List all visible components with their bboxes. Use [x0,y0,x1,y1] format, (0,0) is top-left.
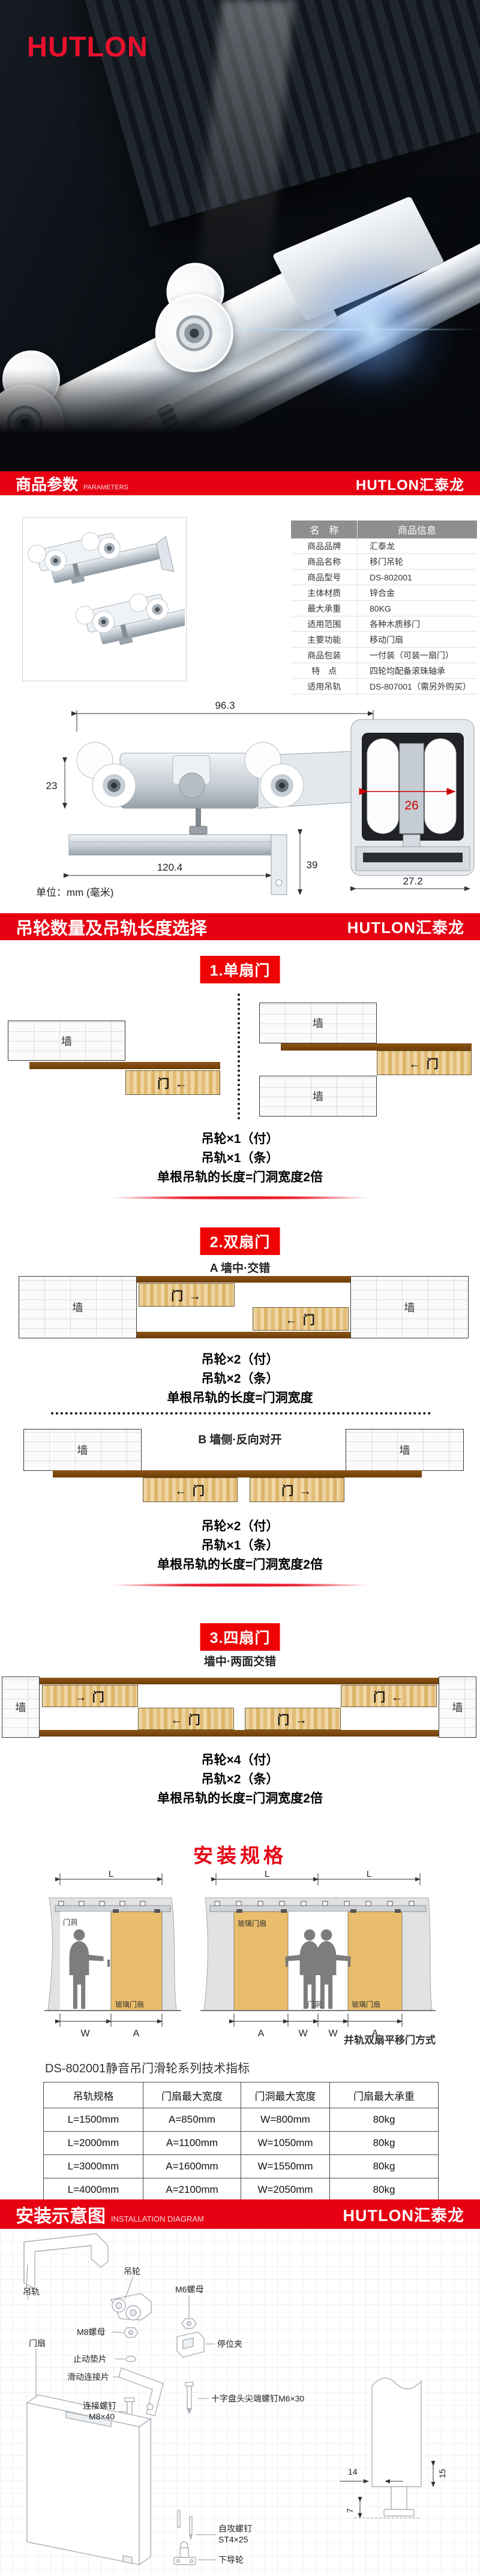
door-panel-callout: 门扇 [29,2339,46,2348]
dimension-drawing: 96.3 23 17.8 120.4 39 单位：mm (毫米) 26 27.2 [0,696,480,899]
table-row: 最大承重80KG [292,601,477,616]
dim-bracket-label: 39 [307,859,318,871]
slide-plate-callout: 滑动连接片 [67,2372,109,2382]
tech-table-title: DS-802001静音吊门滑轮系列技术指标 [45,2059,250,2076]
table-row: 商品包装一付装（可装一扇门） [292,648,477,663]
cell: L=2000mm [44,2132,143,2155]
cell: W=2050mm [241,2178,330,2202]
door-panel: ← 门 [143,1477,238,1502]
roller-callout: 吊轮 [124,2267,140,2276]
dim-inner-label: 26 [404,799,418,812]
install-figure-double: L L 玻璃门扇 门洞 玻璃门扇 A W W A [198,1871,438,2045]
badge-quad-door: 3.四扇门 [200,1623,280,1651]
spec-line: 单根吊轨的长度=门洞宽度2倍 [0,1168,480,1187]
product-photo [22,517,187,681]
table-row: 适用吊轨DS-807001（需另外购买） [292,679,477,694]
spec-label: 主要功能 [292,632,358,648]
product-detail-page: HUTLON 商品参数 PARAMETERS HUTLON汇泰龙 [0,0,480,2576]
spec-lines-double-a: 吊轮×2（付） 吊轨×2（条） 单根吊轨的长度=门洞宽度 [0,1350,480,1408]
cell: A=1600mm [143,2155,241,2178]
table-row: 特 点四轮均配备滚珠轴承 [292,663,477,679]
label-quad-config: 墙中·两面交错 [0,1653,480,1669]
table-row: 商品品牌汇泰龙 [292,538,477,554]
banner-subtitle: INSTALLATION DIAGRAM [111,2214,204,2223]
wall-label: 墙 [61,1033,72,1049]
spec-header-info: 商品信息 [358,521,477,538]
banner-brand: HUTLON汇泰龙 [356,473,464,494]
door-panel: 门 ← [125,1070,220,1095]
self-screw-callout: 自攻螺钉 [218,2524,252,2533]
spec-line: 吊轮×4（付） [0,1751,480,1770]
spec-label: 最大承重 [292,601,358,616]
cell: A=1100mm [143,2132,241,2155]
spec-line: 吊轮×2（付） [0,1350,480,1370]
spec-line: 吊轨×2（条） [0,1770,480,1789]
cell: A=850mm [143,2108,241,2132]
tech-indicator-table: 吊轨规格 门扇最大宽度 门洞最大宽度 门扇最大承重 L=1500mmA=850m… [43,2082,439,2202]
spec-value: 移动门扇 [358,632,477,648]
opening-label: 门洞 [307,2000,322,2009]
figure-caption: 并轨双扇平移门方式 [240,2032,436,2047]
glass-door-label: 玻璃门扇 [238,1919,266,1928]
m6-screw-callout: 十字盘头尖端螺钉M6×30 [211,2394,304,2403]
col-header: 门扇最大宽度 [143,2083,241,2108]
install-spec-title: 安装规格 [0,1840,480,1868]
door-panel: 门 → [245,1708,341,1730]
product-spec-table: 名 称 商品信息 商品品牌汇泰龙 商品名称移门吊轮 商品型号DS-802001 … [291,520,477,694]
dim-l-label: L [109,1871,113,1879]
washer-callout: 止动垫片 [73,2354,107,2364]
spec-value: 四轮均配备滚珠轴承 [358,663,477,679]
dotted-divider-horizontal [51,1412,431,1415]
spec-lines-single: 吊轮×1（付） 吊轨×1（条） 单根吊轨的长度=门洞宽度2倍 [0,1130,480,1187]
m8-screw-callout: 连接螺钉 [83,2401,116,2411]
wall-label: 墙 [77,1442,88,1458]
table-header-row: 吊轨规格 门扇最大宽度 门洞最大宽度 门扇最大承重 [44,2083,439,2108]
wall-block: 墙 [439,1677,476,1738]
spec-value: 80KG [358,601,477,616]
dim-l-label: L [367,1871,371,1879]
exploded-diagram-area: 吊轨 吊轮 M6螺母 M8螺母 止动垫片 滑动连接片 停位夹 十字盘头尖端螺钉M… [0,2229,480,2576]
spec-line: 单根吊轨的长度=门洞宽度2倍 [0,1555,480,1575]
door-panel: ← 门 [377,1051,472,1075]
col-header: 吊轨规格 [44,2083,143,2108]
wall-block: 墙 [259,1076,377,1117]
m8-screw-size: M8×40 [89,2412,115,2421]
cell: 80kg [330,2108,439,2132]
rail-bar [40,1730,439,1737]
dim-14-label: 14 [348,2467,358,2476]
self-screw-size: ST4×25 [218,2535,248,2544]
rail-bar [137,1276,350,1283]
table-row: L=1500mmA=850mmW=800mm80kg [44,2108,439,2132]
wall-label: 墙 [313,1088,323,1104]
dim-profile-label: 27.2 [403,875,422,887]
spec-line: 单根吊轨的长度=门洞宽度 [0,1389,480,1408]
dim-w-label: W [80,2029,90,2039]
spec-value: 汇泰龙 [358,538,477,554]
hero-light-streak [198,329,480,330]
rail-bar [137,1332,350,1338]
dim-rail-label: 120.4 [157,862,183,873]
banner-brand: HUTLON汇泰龙 [343,2202,464,2226]
table-row: 商品名称移门吊轮 [292,554,477,570]
unit-note: 单位：mm (毫米) [36,887,113,898]
rail-bar [29,1062,220,1069]
spec-value: DS-802001 [358,570,477,585]
col-header: 门洞最大宽度 [241,2083,330,2108]
table-header-row: 名 称 商品信息 [292,521,477,538]
hero-floor-shadow [0,369,480,471]
cell: 80kg [330,2132,439,2155]
spec-line: 吊轨×2（条） [0,1370,480,1389]
wall-block: 墙 [23,1429,142,1471]
table-row: 适用范围各种木质移门 [292,616,477,632]
cell: 80kg [330,2178,439,2202]
wall-block: 墙 [350,1276,469,1338]
spec-line: 吊轨×1（条） [0,1149,480,1168]
banner-title: 商品参数 [16,473,78,495]
product-photo-illustration [23,517,185,679]
dim-a-label: A [133,2029,140,2039]
spec-label: 商品名称 [292,554,358,570]
section-banner-parameters: 商品参数 PARAMETERS HUTLON汇泰龙 [0,471,480,495]
section-banner-selection: 吊轮数量及吊轨长度选择 HUTLON汇泰龙 [0,913,480,940]
table-row: 主体材质锌合金 [292,585,477,601]
cell: L=1500mm [44,2108,143,2132]
cell: W=800mm [241,2108,330,2132]
opening-label: 门洞 [63,1918,77,1927]
cell: L=3000mm [44,2155,143,2178]
section-banner-install: 安装示意图 INSTALLATION DIAGRAM HUTLON汇泰龙 [0,2199,480,2229]
spec-lines-quad: 吊轮×4（付） 吊轨×2（条） 单根吊轨的长度=门洞宽度2倍 [0,1751,480,1808]
wall-label: 墙 [400,1442,410,1458]
banner-subtitle: PARAMETERS [83,484,128,491]
m6-nut-callout: M6螺母 [175,2285,203,2294]
spec-label: 商品型号 [292,570,358,585]
cell: L=4000mm [44,2178,143,2202]
table-row: L=2000mmA=1100mmW=1050mm80kg [44,2132,439,2155]
exploded-diagram: 吊轨 吊轮 M6螺母 M8螺母 止动垫片 滑动连接片 停位夹 十字盘头尖端螺钉M… [0,2229,480,2576]
spec-label: 商品品牌 [292,538,358,554]
rail-bar [40,1678,439,1684]
spec-line: 吊轮×2（付） [0,1517,480,1536]
install-figure-single: L 门洞 玻璃门扇 W A [41,1871,185,2045]
wall-block: 墙 [19,1276,137,1338]
badge-single-door: 1.单扇门 [200,956,280,983]
rail-bar [281,1043,472,1051]
cell: 80kg [330,2155,439,2178]
spec-line: 吊轮×1（付） [0,1130,480,1149]
dim-15-label: 15 [437,2469,447,2478]
door-panel: → 门 [42,1685,138,1707]
spec-value: DS-807001（需另外购买） [358,679,477,694]
spec-value: 移门吊轮 [358,554,477,570]
banner-brand: HUTLON汇泰龙 [347,916,464,938]
table-row: L=3000mmA=1600mmW=1550mm80kg [44,2155,439,2178]
glass-door-label: 玻璃门扇 [352,2000,380,2009]
dim-width-label: 96.3 [215,700,235,711]
rail-bar [53,1470,422,1477]
red-divider [65,1195,415,1200]
spec-label: 商品包装 [292,648,358,663]
wall-block: 墙 [259,1003,377,1043]
glass-door-label: 玻璃门扇 [115,2000,144,2009]
wall-label: 墙 [404,1299,415,1315]
spec-header-name: 名 称 [292,521,358,538]
spec-value: 一付装（可装一扇门） [358,648,477,663]
wall-label: 墙 [73,1299,83,1315]
spec-value: 各种木质移门 [358,616,477,632]
banner-title: 安装示意图 [16,2201,106,2228]
wall-label: 墙 [16,1699,26,1715]
label-config-a: A 墙中·交错 [0,1259,480,1275]
spec-label: 适用吊轨 [292,679,358,694]
dim-l-label: L [265,1871,269,1879]
wall-label: 墙 [452,1699,463,1715]
door-panel: 门 ← [341,1685,437,1707]
stop-clip-callout: 停位夹 [217,2339,242,2349]
spec-line: 单根吊轨的长度=门洞宽度2倍 [0,1789,480,1808]
spec-label: 主体材质 [292,585,358,601]
wall-block: 墙 [2,1677,40,1738]
rail-callout: 吊轨 [23,2287,40,2297]
dim-left-label: 23 [46,780,58,792]
spec-label: 特 点 [292,663,358,679]
cell: W=1550mm [241,2155,330,2178]
hero-image: HUTLON [0,0,480,471]
table-row: 商品型号DS-802001 [292,570,477,585]
cell: A=2100mm [143,2178,241,2202]
spec-lines-double-b: 吊轮×2（付） 吊轨×1（条） 单根吊轨的长度=门洞宽度2倍 [0,1517,480,1575]
dotted-divider-vertical [238,994,240,1120]
bottom-guide-callout: 下导轮 [218,2555,244,2565]
wall-block: 墙 [8,1021,125,1061]
banner-title: 吊轮数量及吊轨长度选择 [16,914,207,940]
wall-block: 墙 [346,1429,464,1471]
table-row: 主要功能移动门扇 [292,632,477,648]
door-panel: 门 → [250,1477,344,1502]
m8-nut-callout: M8螺母 [77,2327,105,2337]
dim-7-label: 7 [345,2508,355,2513]
door-panel: 门 → [139,1283,235,1307]
spec-value: 锌合金 [358,585,477,601]
spec-line: 吊轨×1（条） [0,1536,480,1555]
table-row: L=4000mmA=2100mmW=2050mm80kg [44,2178,439,2202]
brand-logo: HUTLON [27,30,148,63]
cell: W=1050mm [241,2132,330,2155]
spec-label: 适用范围 [292,616,358,632]
col-header: 门扇最大承重 [330,2083,439,2108]
red-divider [65,1582,415,1588]
badge-double-door: 2.双扇门 [200,1227,280,1255]
wall-label: 墙 [313,1015,323,1031]
door-panel: ← 门 [138,1708,234,1730]
door-panel: ← 门 [253,1307,349,1331]
